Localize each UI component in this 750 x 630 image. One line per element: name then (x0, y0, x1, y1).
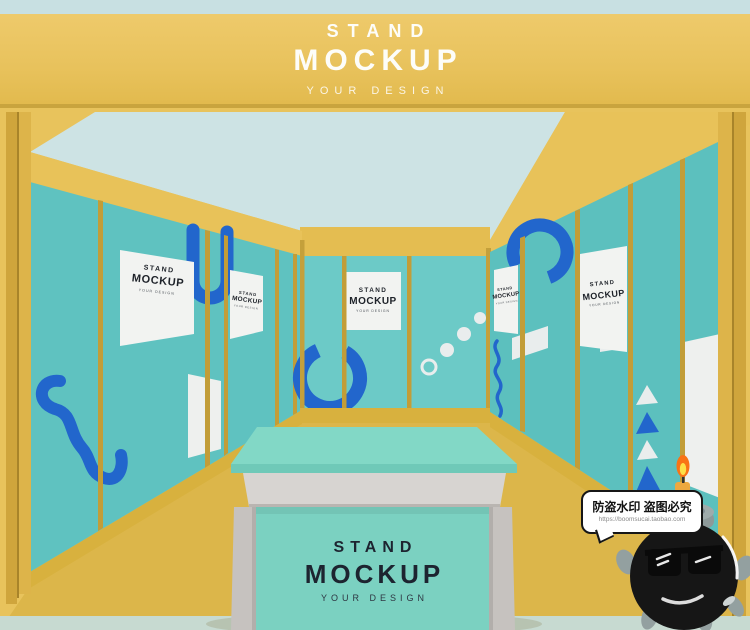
watermark-url: https://boomsucai.taobao.com (599, 516, 686, 524)
bomb-body (630, 522, 738, 630)
banner-tagline: YOUR DESIGN (300, 85, 449, 97)
sunglasses-right-lens (688, 547, 721, 574)
watermark-speech-bubble: 防盗水印 盗图必究 https://boomsucai.taobao.com (581, 490, 703, 534)
header-banner: STAND MOCKUP YOUR DESIGN (0, 14, 750, 108)
top-strip (0, 0, 750, 14)
podium-front-panel (256, 507, 489, 630)
poster-board-left-large (120, 250, 194, 346)
back-wall (289, 240, 491, 423)
left-wall-white-rect (188, 374, 221, 458)
podium (206, 427, 542, 630)
poster-board-right-small (494, 265, 518, 334)
podium-top (231, 427, 517, 464)
booth-3d-scene (0, 108, 750, 630)
banner-title-line1: STAND (318, 21, 433, 42)
right-wall-white-rect-3 (684, 334, 720, 498)
poster-board-center (345, 272, 401, 330)
watermark-notice: 防盗水印 盗图必究 (592, 501, 691, 515)
banner-title-line2: MOCKUP (287, 44, 462, 78)
poster-board-right-large (580, 246, 627, 352)
poster-board-left-small (230, 270, 263, 339)
podium-gray-band (243, 473, 506, 507)
back-wall-baseboard (300, 408, 490, 423)
stand-mockup-scene: STAND MOCKUP YOUR DESIGN (0, 0, 750, 630)
